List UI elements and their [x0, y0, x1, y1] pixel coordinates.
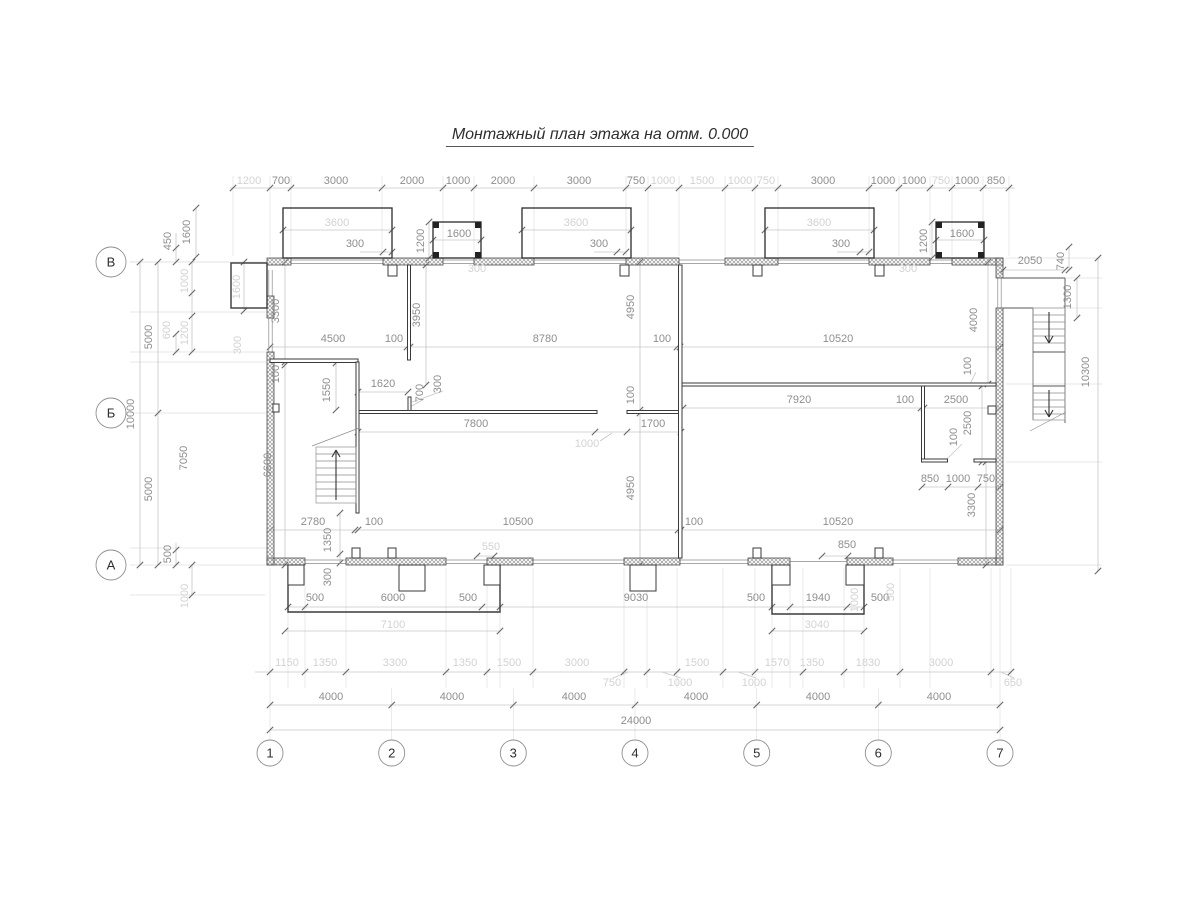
- axis-bubbles: 1234567ВБА: [96, 247, 1013, 766]
- dim-label: 1150: [275, 657, 299, 669]
- dim-label: 750: [603, 677, 621, 689]
- dim-label: 1550: [321, 378, 333, 402]
- axis-col-3-label: 3: [510, 746, 517, 761]
- dim-label: 3000: [565, 657, 589, 669]
- dim-label: 750: [977, 473, 995, 485]
- dim-label: 550: [482, 541, 500, 553]
- dim-label: 10000: [125, 399, 137, 430]
- dim-label: 300: [590, 238, 608, 250]
- dim-label: 4000: [806, 691, 830, 703]
- dim-label: 4000: [319, 691, 343, 703]
- dim-label: 300: [468, 263, 486, 275]
- dim-label: 1000: [179, 584, 191, 608]
- dim-label: 1600: [231, 275, 243, 299]
- dim-label: 6600: [262, 453, 274, 477]
- balconies-porches: [231, 208, 984, 614]
- dim-label: 4000: [684, 691, 708, 703]
- dim-label: 650: [1004, 677, 1022, 689]
- dim-label: 4950: [625, 295, 637, 319]
- dim-label: 9030: [624, 592, 648, 604]
- dim-label: 850: [921, 473, 939, 485]
- dim-label: 7050: [178, 446, 190, 470]
- dim-label: 100: [948, 428, 960, 446]
- dim-label: 7920: [787, 394, 811, 406]
- dim-label: 700: [272, 175, 290, 187]
- dim-label: 300: [832, 238, 850, 250]
- dim-label: 1830: [856, 657, 880, 669]
- dim-label: 2500: [962, 411, 974, 435]
- dim-label: 100: [685, 516, 703, 528]
- dim-label: 7800: [464, 418, 488, 430]
- dim-label: 3040: [805, 619, 829, 631]
- dim-label: 300: [232, 336, 244, 354]
- axis-row-А-label: А: [107, 558, 116, 573]
- dim-label: 2050: [1018, 255, 1042, 267]
- dim-label: 4000: [562, 691, 586, 703]
- dim-label: 300: [346, 238, 364, 250]
- dim-label: 5000: [143, 477, 155, 501]
- dim-label: 4000: [927, 691, 951, 703]
- dim-label: 8780: [533, 333, 557, 345]
- axis-col-7-label: 7: [996, 746, 1003, 761]
- dim-label: 740: [1055, 252, 1067, 270]
- dim-label: 3300: [383, 657, 407, 669]
- dim-label: 4000: [968, 308, 980, 332]
- dim-label: 1000: [179, 269, 191, 293]
- axis-col-4-label: 4: [631, 746, 638, 761]
- dim-label: 450: [162, 232, 174, 250]
- dim-label: 1000: [902, 175, 926, 187]
- axis-row-Б-label: Б: [107, 406, 116, 421]
- dim-label: 1000: [651, 175, 675, 187]
- dim-label: 4500: [321, 333, 345, 345]
- axis-row-В-label: В: [107, 255, 116, 270]
- dim-label: 1600: [181, 220, 193, 244]
- dim-label: 100: [962, 357, 974, 375]
- dim-label: 600: [161, 321, 173, 339]
- drawing-sheet: Монтажный план этажа на отм. 0.000: [0, 0, 1200, 900]
- dim-label: 1200: [237, 175, 261, 187]
- dim-label: 1000: [849, 588, 861, 612]
- dim-label: 850: [987, 175, 1005, 187]
- dim-label: 1500: [497, 657, 521, 669]
- floor-plan-drawing: 1200700300020001000200030007501000150010…: [0, 0, 1200, 900]
- dim-label: 300: [322, 568, 334, 586]
- dim-label: 500: [162, 545, 174, 563]
- dim-label: 3000: [811, 175, 835, 187]
- dim-label: 5000: [143, 325, 155, 349]
- dim-label: 2780: [301, 516, 325, 528]
- dimension-lines: [137, 185, 1101, 733]
- dim-label: 1200: [415, 229, 427, 253]
- dim-label: 1000: [575, 438, 599, 450]
- dim-label: 2000: [400, 175, 424, 187]
- dim-label: 100: [896, 394, 914, 406]
- dim-label: 1350: [453, 657, 477, 669]
- axis-col-6-label: 6: [875, 746, 882, 761]
- dim-label: 10520: [823, 333, 854, 345]
- dim-label: 4950: [625, 476, 637, 500]
- dim-label: 1600: [950, 228, 974, 240]
- dim-label: 700: [414, 384, 426, 402]
- dim-label: 3300: [966, 493, 978, 517]
- dim-label: 1350: [322, 528, 334, 552]
- dim-label: 3600: [564, 217, 588, 229]
- dim-label: 1000: [871, 175, 895, 187]
- dim-label: 750: [932, 175, 950, 187]
- dim-label: 300: [899, 263, 917, 275]
- dim-label: 750: [627, 175, 645, 187]
- dim-label: 1570: [765, 657, 789, 669]
- dim-label: 1000: [668, 677, 692, 689]
- interior-stair: [312, 428, 359, 503]
- dim-label: 100: [385, 333, 403, 345]
- dim-label: 1300: [1062, 285, 1074, 309]
- dim-label: 1000: [728, 175, 752, 187]
- dim-label: 10500: [503, 516, 534, 528]
- dim-label: 3600: [325, 217, 349, 229]
- dim-label: 2500: [944, 394, 968, 406]
- dim-label: 3950: [411, 303, 423, 327]
- dim-label: 6000: [381, 592, 405, 604]
- dim-label: 850: [838, 539, 856, 551]
- dim-label: 3600: [807, 217, 831, 229]
- dim-label: 3000: [324, 175, 348, 187]
- dim-label: 1600: [447, 228, 471, 240]
- dim-label: 100: [270, 365, 282, 383]
- dim-label: 24000: [621, 715, 652, 727]
- dim-label: 1000: [946, 473, 970, 485]
- dim-label: 10520: [823, 516, 854, 528]
- dim-label: 1350: [313, 657, 337, 669]
- dim-label: 1500: [685, 657, 709, 669]
- dim-label: 750: [757, 175, 775, 187]
- axis-col-5-label: 5: [753, 746, 760, 761]
- dim-label: 3300: [270, 299, 282, 323]
- dim-label: 100: [365, 516, 383, 528]
- dim-label: 500: [306, 592, 324, 604]
- dim-label: 100: [653, 333, 671, 345]
- dim-label: 10300: [1080, 357, 1092, 388]
- dim-label: 4000: [440, 691, 464, 703]
- dim-label: 7100: [381, 619, 405, 631]
- dim-label: 1200: [918, 229, 930, 253]
- dim-label: 1620: [371, 378, 395, 390]
- dim-label: 1350: [800, 657, 824, 669]
- dim-label: 500: [459, 592, 477, 604]
- dim-label: 1200: [179, 321, 191, 345]
- axis-col-1-label: 1: [266, 746, 273, 761]
- dim-label: 100: [625, 386, 637, 404]
- exterior-stair: [1003, 278, 1066, 431]
- dim-label: 1940: [806, 592, 830, 604]
- axis-col-2-label: 2: [388, 746, 395, 761]
- dim-label: 3000: [929, 657, 953, 669]
- dim-label: 1000: [446, 175, 470, 187]
- dim-label: 300: [432, 375, 444, 393]
- dim-label: 1000: [742, 677, 766, 689]
- dim-label: 1700: [641, 418, 665, 430]
- dim-label: 1000: [955, 175, 979, 187]
- dim-label: 3000: [567, 175, 591, 187]
- dim-label: 500: [885, 583, 897, 601]
- dim-label: 500: [747, 592, 765, 604]
- dim-label: 1500: [690, 175, 714, 187]
- dim-label: 2000: [491, 175, 515, 187]
